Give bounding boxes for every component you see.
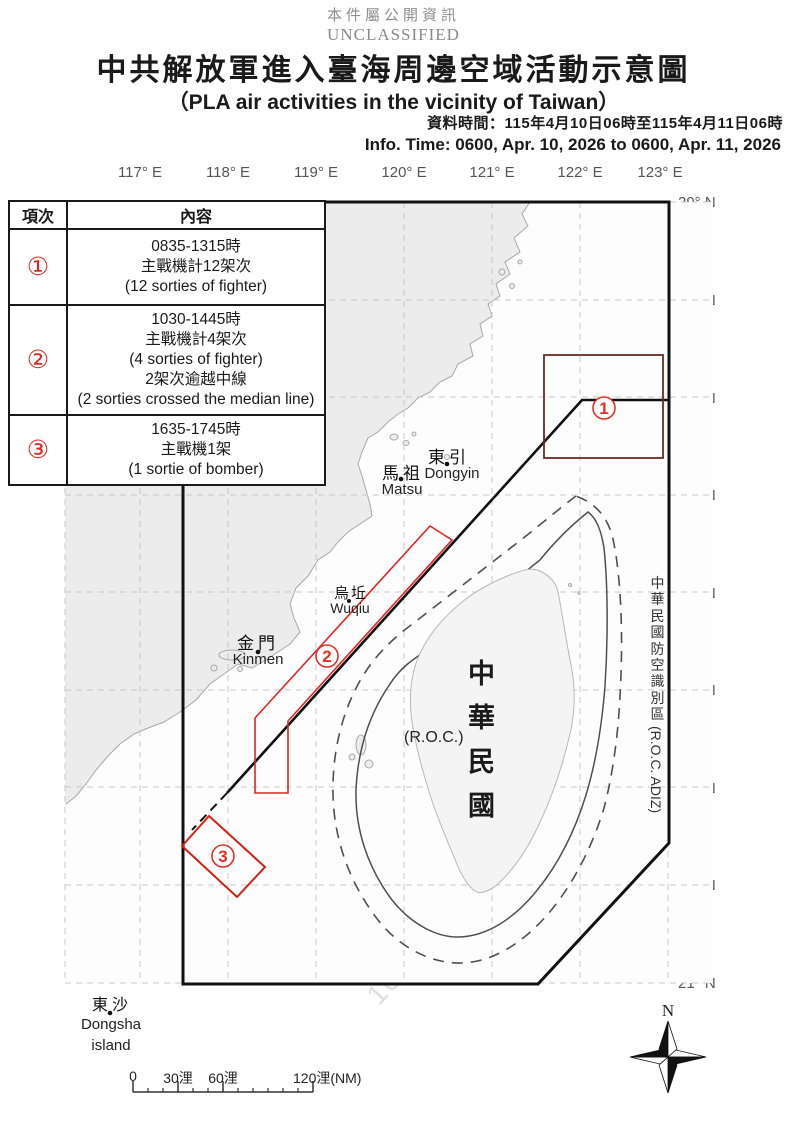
compass-n-label: N: [662, 1001, 674, 1021]
scale-tick-label: 60浬: [208, 1068, 238, 1088]
marker-1: 1: [599, 399, 608, 418]
lon-label: 118° E: [206, 164, 250, 181]
page-title: 中共解放軍進入臺海周邊空域活動示意圖: [0, 45, 787, 89]
dongsha-label-en: Dongsha: [81, 1016, 141, 1033]
lon-label: 122° E: [557, 164, 602, 181]
roc-label-zh: 中 華 民 國: [468, 652, 495, 828]
dongyin-label-en: Dongyin: [424, 465, 479, 482]
info-time-en: Info. Time: 0600, Apr. 10, 2026 to 0600,…: [365, 135, 781, 155]
activity-line: 0835-1315時: [69, 237, 323, 257]
activity-line: (12 sorties of fighter): [69, 277, 323, 297]
page: 10.177.110.91 10.177.110.91 10.177.110.9…: [0, 0, 787, 1137]
lon-label: 123° E: [637, 164, 682, 181]
scale-tick-label: 120浬(NM): [293, 1068, 361, 1088]
marker-2: 2: [322, 647, 331, 666]
classification-label: UNCLASSIFIED: [0, 25, 787, 45]
lon-label: 119° E: [294, 164, 338, 181]
activity-line: (4 sorties of fighter): [69, 350, 323, 370]
adiz-label-zh: 中 華 民 國 防 空 識 別 區: [649, 577, 666, 725]
adiz-label-en: (R.O.C. ADIZ): [648, 726, 664, 813]
row-marker: ③: [9, 415, 67, 485]
activity-line: 1635-1745時: [69, 420, 323, 440]
marker-3: 3: [218, 847, 227, 866]
activity-table: 項次 內容 ① 0835-1315時 主戰機計12架次 (12 sorties …: [8, 200, 326, 486]
kinmen-label-en: Kinmen: [233, 651, 284, 668]
scale-tick-label: 0: [129, 1068, 137, 1084]
table-header-row: 項次 內容: [9, 201, 325, 229]
table-row: ① 0835-1315時 主戰機計12架次 (12 sorties of fig…: [9, 229, 325, 305]
activity-line: 主戰機計4架次: [69, 330, 323, 350]
matsu-label-en: Matsu: [382, 481, 423, 498]
activity-line: (2 sorties crossed the median line): [69, 390, 323, 410]
row-marker: ①: [9, 229, 67, 305]
public-info-notice: 本件屬公開資訊: [0, 4, 787, 25]
lon-label: 117° E: [118, 164, 162, 181]
roc-label-en: (R.O.C.): [404, 729, 464, 747]
lon-label: 120° E: [381, 164, 426, 181]
table-row: ③ 1635-1745時 主戰機1架 (1 sortie of bomber): [9, 415, 325, 485]
activity-line: (1 sortie of bomber): [69, 460, 323, 480]
activity-line: 主戰機1架: [69, 440, 323, 460]
wuqiu-label-en: Wuqiu: [330, 600, 369, 616]
table-row: ② 1030-1445時 主戰機計4架次 (4 sorties of fight…: [9, 305, 325, 415]
dongsha-label-en2: island: [91, 1037, 130, 1054]
dongsha-label-zh: 東沙: [92, 991, 132, 1015]
info-time-zh: 資料時間：115年4月10日06時至115年4月11日06時: [427, 112, 783, 133]
activity-line: 2架次逾越中線: [69, 370, 323, 390]
row-marker: ②: [9, 305, 67, 415]
col-header-content: 內容: [67, 201, 325, 229]
scale-tick-label: 30浬: [163, 1068, 193, 1088]
activity-line: 1030-1445時: [69, 310, 323, 330]
activity-line: 主戰機計12架次: [69, 257, 323, 277]
col-header-item: 項次: [9, 201, 67, 229]
lon-label: 121° E: [469, 164, 514, 181]
compass-rose-icon: [630, 1021, 706, 1093]
